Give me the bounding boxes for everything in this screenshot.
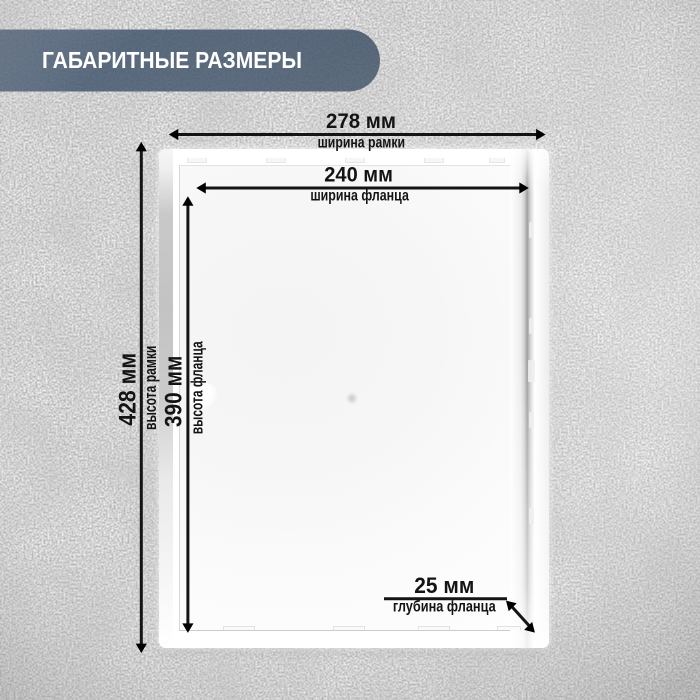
svg-text:278 мм: 278 мм xyxy=(326,109,396,133)
svg-text:глубина фланца: глубина фланца xyxy=(393,598,496,615)
svg-text:390 мм: 390 мм xyxy=(160,356,187,427)
svg-text:высота рамки: высота рамки xyxy=(141,346,160,430)
svg-text:240 мм: 240 мм xyxy=(324,162,393,186)
svg-text:25 мм: 25 мм xyxy=(414,573,474,598)
svg-text:ширина фланца: ширина фланца xyxy=(310,188,409,205)
svg-text:428 мм: 428 мм xyxy=(115,353,142,426)
svg-text:высота фланца: высота фланца xyxy=(187,341,206,434)
svg-text:ширина рамки: ширина рамки xyxy=(318,135,405,152)
